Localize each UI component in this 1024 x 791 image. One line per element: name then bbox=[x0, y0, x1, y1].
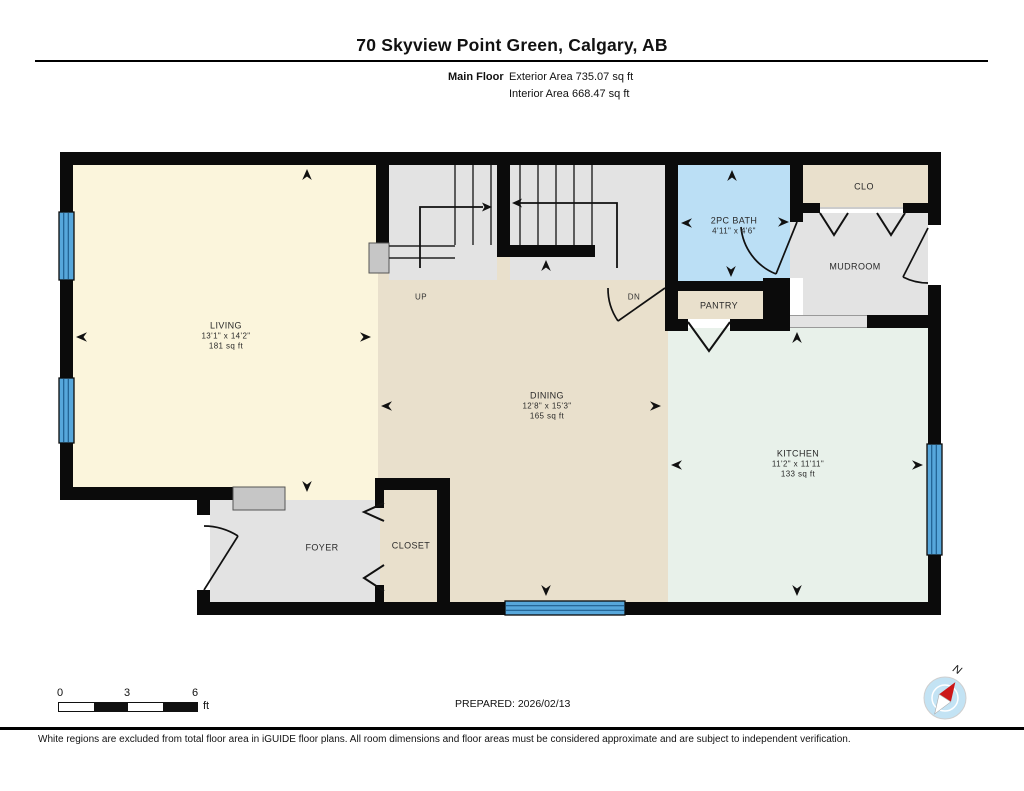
mudroom-kitchen-opening bbox=[790, 315, 867, 328]
scale-unit: ft bbox=[203, 700, 209, 712]
dining-window bbox=[505, 601, 625, 615]
stairs-up-label: UP bbox=[415, 293, 427, 302]
compass-icon bbox=[924, 677, 966, 719]
prepared-date: PREPARED: 2026/02/13 bbox=[455, 698, 570, 710]
stairs-dn-floor bbox=[510, 165, 668, 280]
stairs-up-floor bbox=[389, 165, 497, 280]
disclaimer-text: White regions are excluded from total fl… bbox=[38, 734, 851, 745]
living-window-lower bbox=[59, 378, 74, 443]
closet-label: CLOSET bbox=[392, 541, 430, 552]
foyer-label: FOYER bbox=[305, 543, 338, 554]
pantry-label: PANTRY bbox=[700, 301, 738, 312]
clo-label: CLO bbox=[854, 182, 874, 193]
foyer-floor bbox=[210, 500, 380, 602]
living-window-upper bbox=[59, 212, 74, 280]
kitchen-window bbox=[927, 444, 942, 555]
scale-tick-3: 3 bbox=[124, 687, 130, 699]
mudroom-label: MUDROOM bbox=[829, 262, 880, 273]
bath-label: 2PC BATH 4'11" x 4'6" bbox=[711, 216, 758, 237]
stair-newel-block bbox=[369, 243, 389, 273]
scale-bar bbox=[58, 702, 198, 712]
living-label: LIVING 13'1" x 14'2" 181 sq ft bbox=[201, 321, 250, 352]
dining-label: DINING 12'8" x 15'3" 165 sq ft bbox=[522, 391, 571, 422]
mudroom-door-opening bbox=[928, 225, 941, 285]
floorplan-page: 70 Skyview Point Green, Calgary, AB Main… bbox=[0, 0, 1024, 791]
foyer-bench-block bbox=[233, 487, 285, 510]
scale-tick-6: 6 bbox=[192, 687, 198, 699]
kitchen-label: KITCHEN 11'2" x 11'11" 133 sq ft bbox=[772, 449, 824, 480]
scale-tick-0: 0 bbox=[57, 687, 63, 699]
floor-plan bbox=[0, 0, 1024, 791]
footer-rule bbox=[0, 727, 1024, 730]
bath-door-gap bbox=[790, 222, 803, 278]
stairs-dn-label: DN bbox=[628, 293, 641, 302]
